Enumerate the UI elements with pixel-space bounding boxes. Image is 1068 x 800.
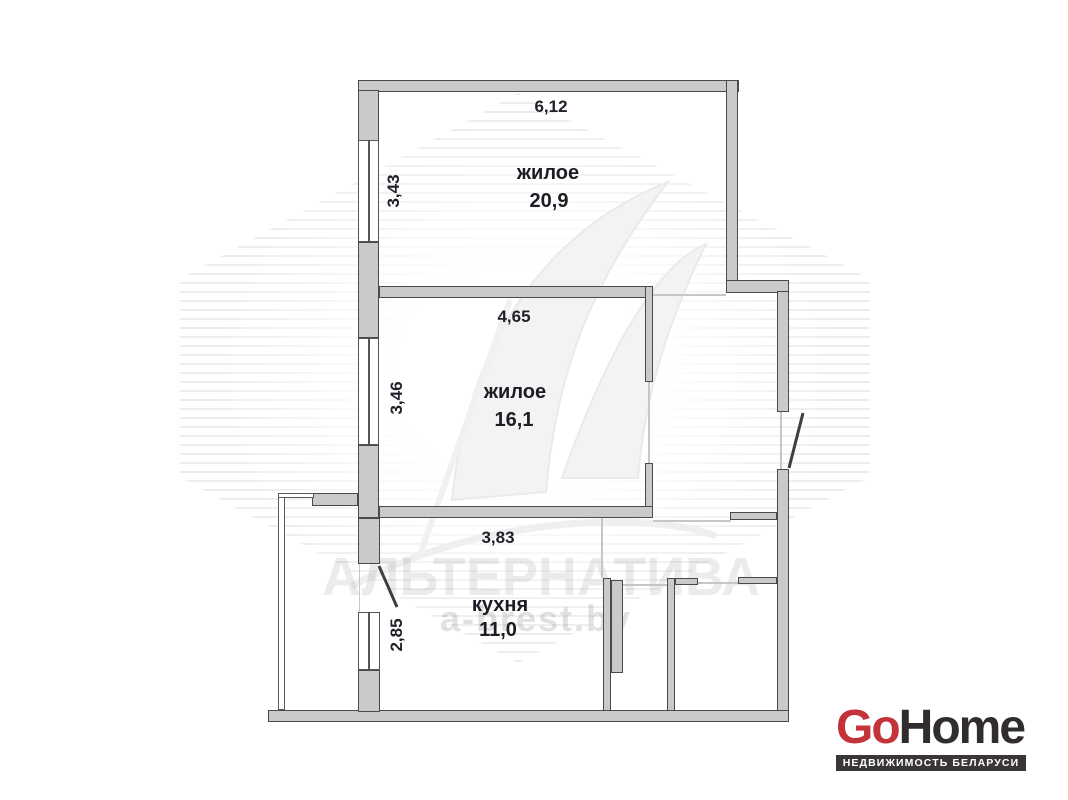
floorplan-canvas: АЛЬТЕРНАТИВА a-brest.by 6,12: [0, 0, 1068, 800]
dim-room2-width: 4,65: [474, 307, 554, 327]
room1-area: 20,9: [489, 190, 609, 213]
kitchen-name: кухня: [440, 594, 560, 617]
logo-home-text: Home: [899, 701, 1024, 754]
dim-room2-height: 3,46: [387, 358, 407, 438]
gohome-wordmark: GoHome: [836, 704, 1026, 752]
dim-kitchen-height: 2,85: [387, 595, 407, 675]
logo-go-text: Go: [836, 701, 899, 754]
kitchen-area: 11,0: [438, 619, 558, 642]
dim-room1-height: 3,43: [384, 151, 404, 231]
room1-name: жилое: [488, 162, 608, 185]
dim-room1-width: 6,12: [511, 97, 591, 117]
logo-tagline-bar: НЕДВИЖИМОСТЬ БЕЛАРУСИ: [836, 755, 1026, 771]
dim-kitchen-width: 3,83: [458, 528, 538, 548]
room2-area: 16,1: [454, 409, 574, 432]
gohome-logo: GoHome НЕДВИЖИМОСТЬ БЕЛАРУСИ: [836, 704, 1026, 771]
room2-name: жилое: [455, 381, 575, 404]
door-leaf-entry: [789, 413, 803, 468]
